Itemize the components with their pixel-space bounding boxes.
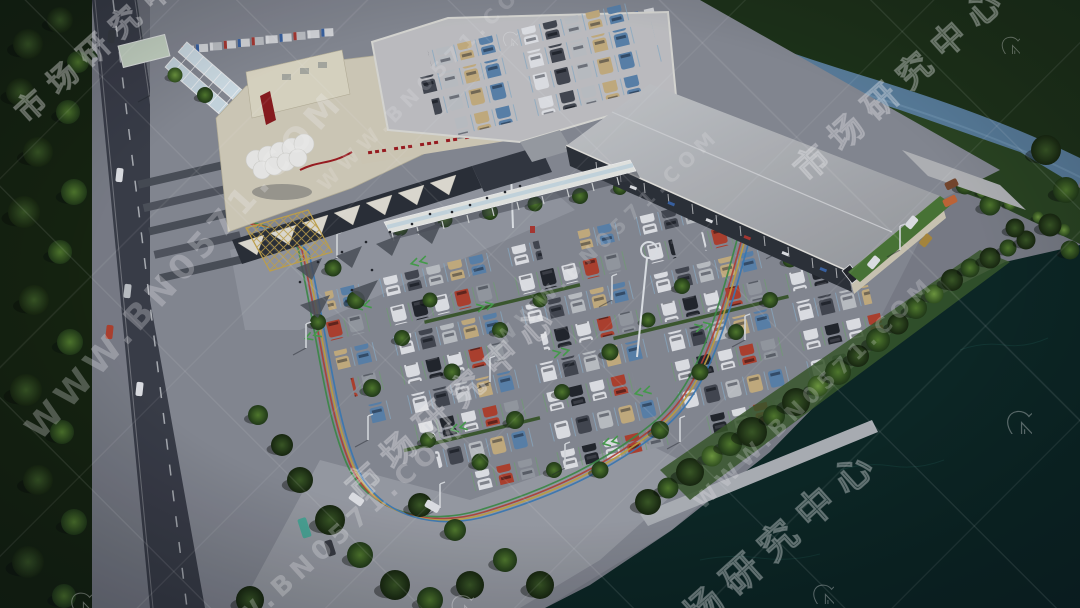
scene-graphics: ® [0,0,1080,608]
vignette [0,0,1080,608]
aerial-render: ® [0,0,1080,608]
